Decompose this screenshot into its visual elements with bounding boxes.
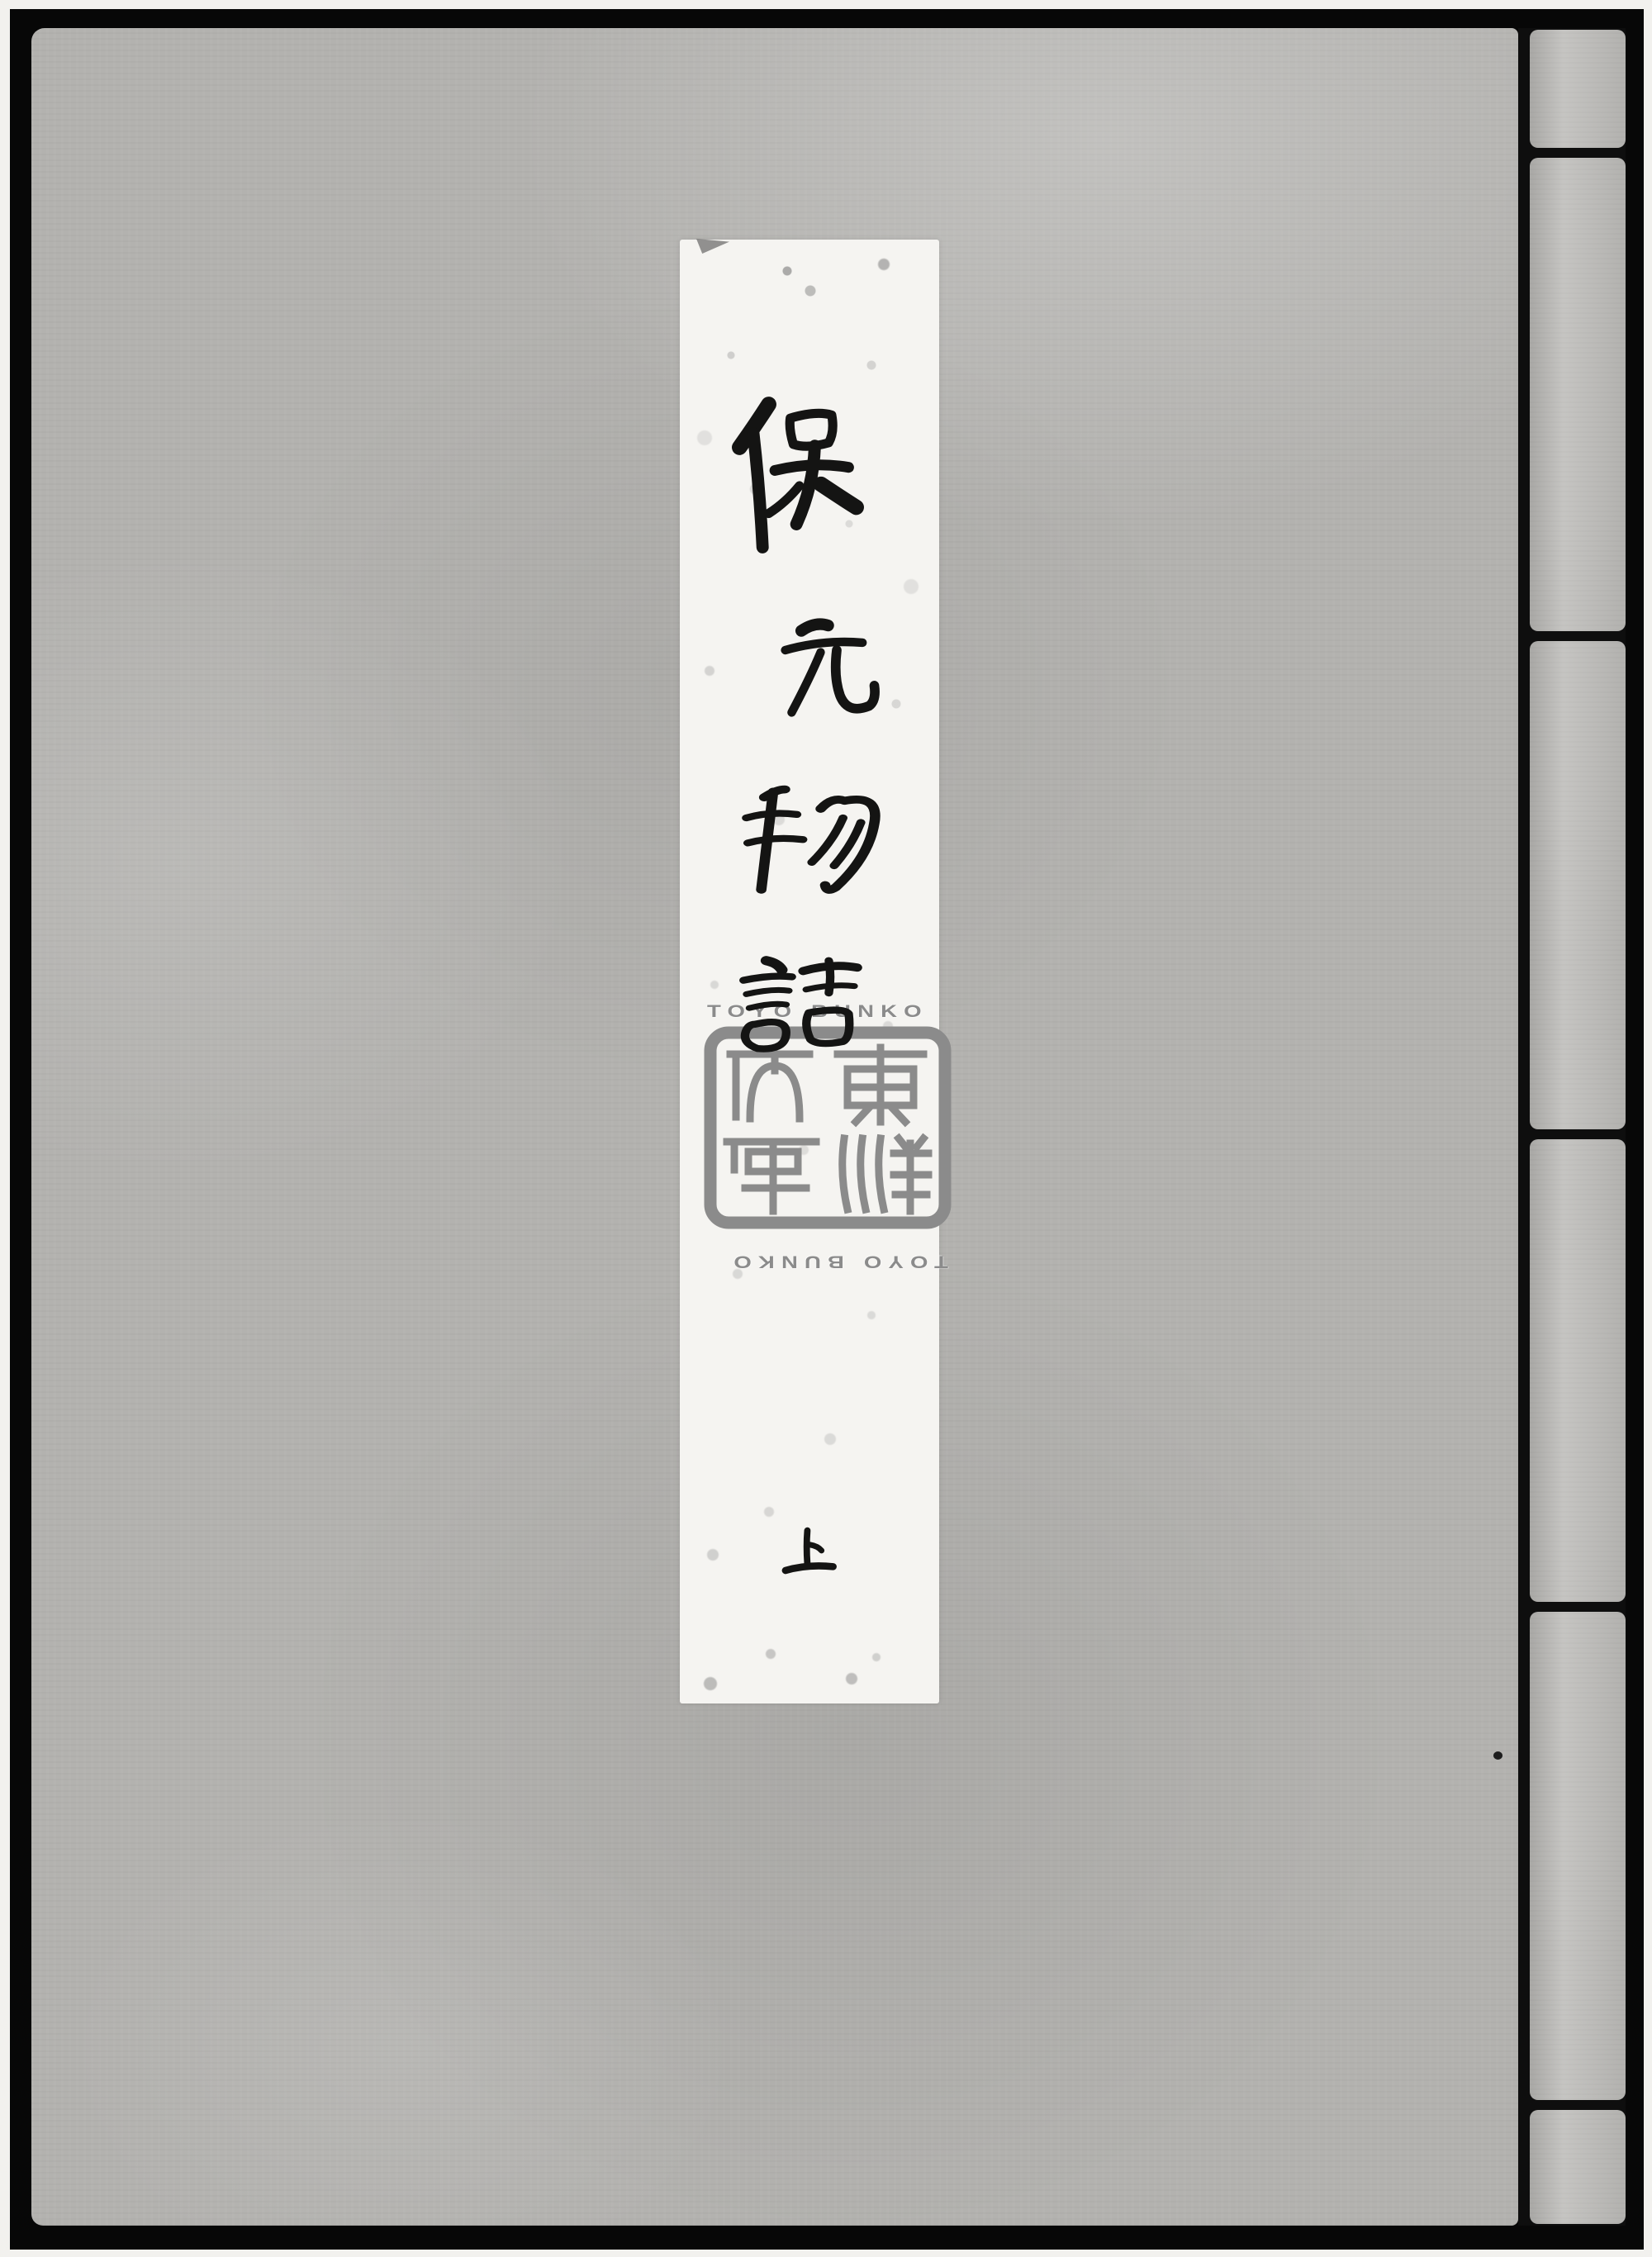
binding-segment	[1530, 1612, 1626, 2100]
dust-speck	[1493, 1751, 1502, 1760]
binding-strip	[1518, 28, 1626, 2226]
watermark-text-top: TOYO BUNKO	[707, 1001, 928, 1022]
title-label	[680, 240, 939, 1703]
binding-segment	[1530, 1139, 1626, 1602]
label-notch	[696, 239, 729, 254]
watermark-text-bottom: TOYO BUNKO	[727, 1252, 948, 1272]
binding-segment	[1530, 2110, 1626, 2224]
binding-segment	[1530, 641, 1626, 1129]
scanned-book-cover: TOYO BUNKO TOYO BUNKO	[0, 0, 1652, 2257]
binding-segment	[1530, 30, 1626, 148]
binding-segment	[1530, 158, 1626, 631]
